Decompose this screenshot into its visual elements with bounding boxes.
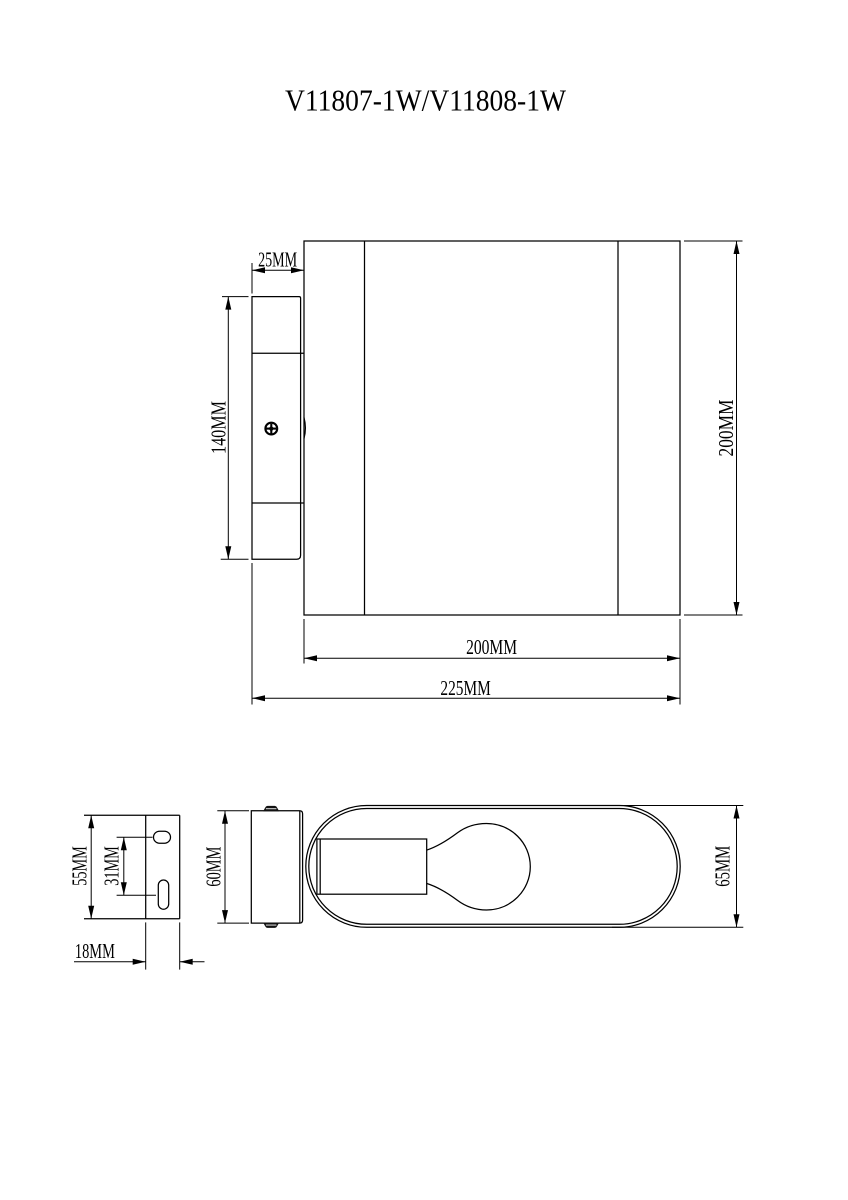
svg-text:V11807-1W/V11808-1W: V11807-1W/V11808-1W [285,83,567,118]
svg-text:140MM: 140MM [206,401,230,454]
svg-text:65MM: 65MM [711,845,735,886]
svg-text:18MM: 18MM [75,939,115,963]
svg-text:60MM: 60MM [202,846,226,886]
svg-text:31MM: 31MM [100,846,124,886]
svg-text:25MM: 25MM [258,248,297,272]
svg-text:200MM: 200MM [466,635,517,659]
svg-text:55MM: 55MM [67,846,91,886]
svg-text:200MM: 200MM [714,399,738,456]
svg-text:225MM: 225MM [440,676,491,700]
